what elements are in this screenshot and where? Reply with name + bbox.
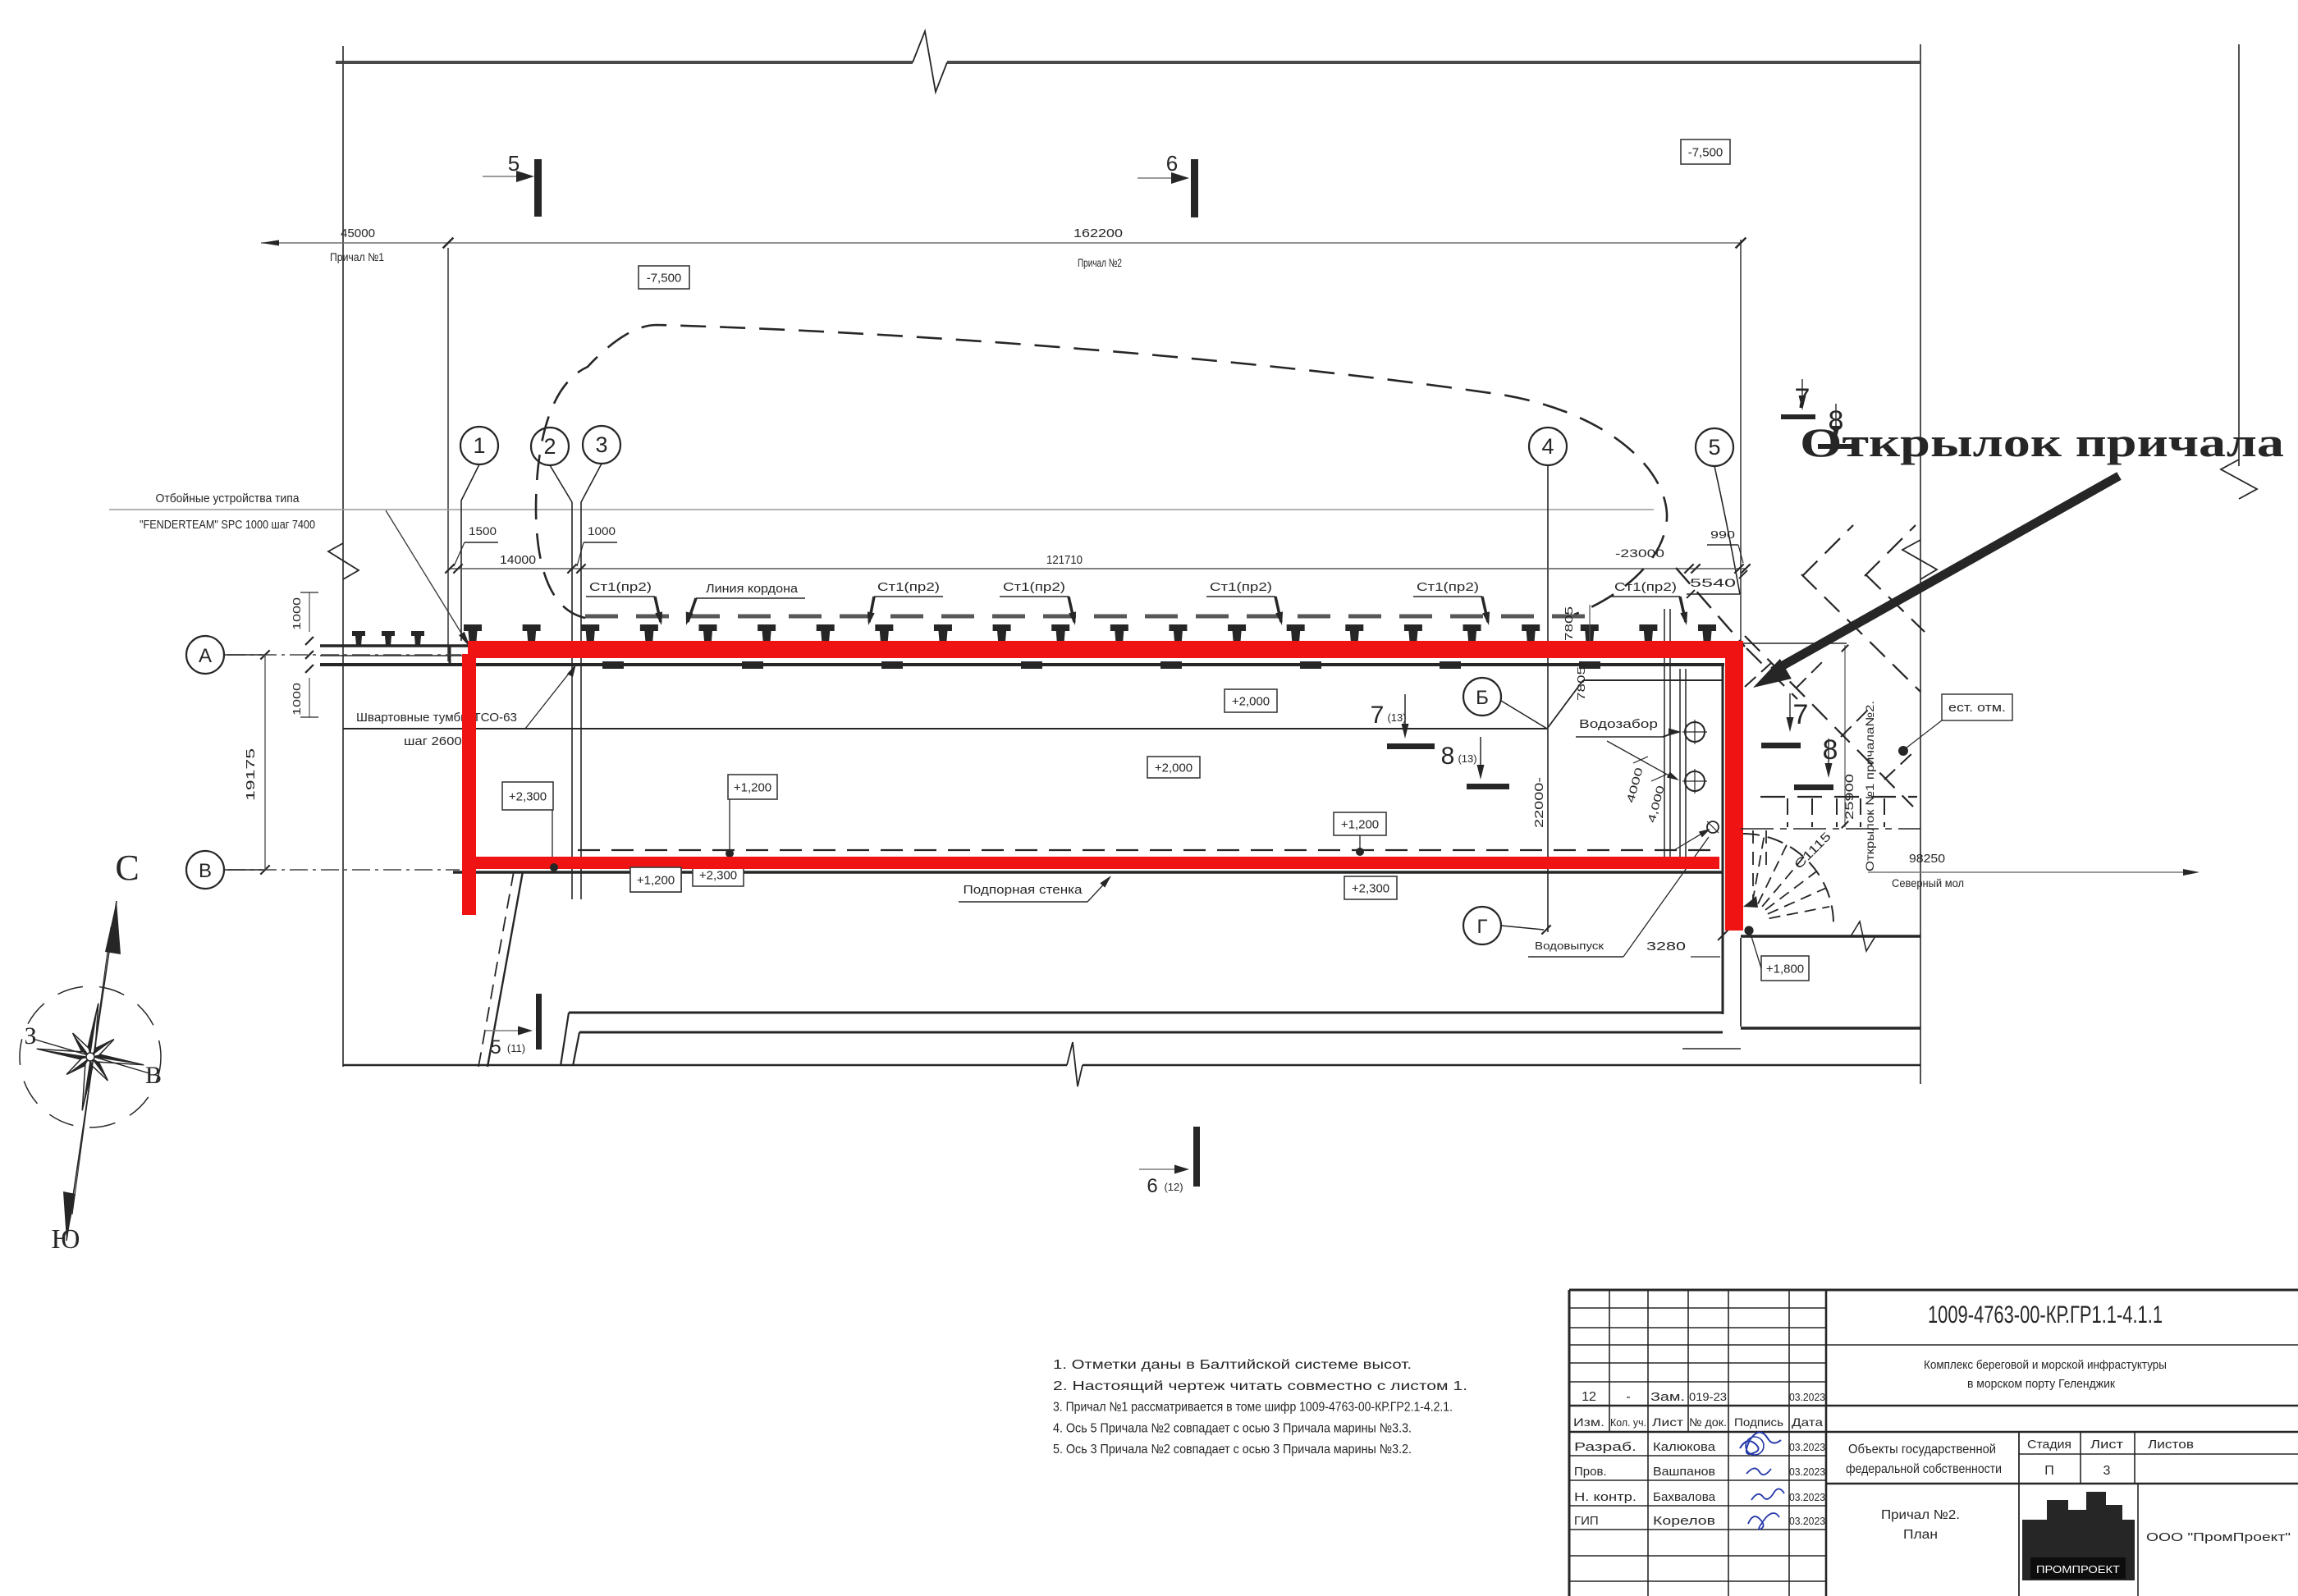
svg-text:4. Ось 5 Причала №2 совпадает: 4. Ось 5 Причала №2 совпадает с осью 3 П… xyxy=(1053,1421,1412,1435)
svg-text:Ю: Ю xyxy=(52,1224,80,1255)
svg-text:Лист: Лист xyxy=(1652,1415,1684,1429)
svg-text:19175: 19175 xyxy=(244,748,258,801)
svg-text:1000: 1000 xyxy=(291,597,303,630)
svg-text:Пров.: Пров. xyxy=(1574,1465,1607,1479)
svg-text:Северный мол: Северный мол xyxy=(1892,876,1964,889)
svg-text:1000: 1000 xyxy=(291,683,303,716)
svg-text:2. Настоящий чертеж читать сов: 2. Настоящий чертеж читать совместно с л… xyxy=(1053,1379,1467,1393)
svg-text:Г: Г xyxy=(1477,916,1488,938)
svg-text:162200: 162200 xyxy=(1073,226,1123,240)
svg-text:7805: 7805 xyxy=(1575,666,1587,701)
svg-text:5540: 5540 xyxy=(1690,576,1736,589)
svg-text:Вашпанов: Вашпанов xyxy=(1653,1465,1715,1479)
svg-text:+2,000: +2,000 xyxy=(1232,694,1270,708)
svg-text:03.2023: 03.2023 xyxy=(1789,1391,1825,1403)
svg-text:П: П xyxy=(2044,1464,2054,1478)
svg-text:ест. отм.: ест. отм. xyxy=(1948,701,2006,715)
svg-text:8: 8 xyxy=(1441,743,1455,770)
svg-text:45000: 45000 xyxy=(341,226,375,240)
svg-text:Водовыпуск: Водовыпуск xyxy=(1535,940,1604,952)
svg-text:+2,300: +2,300 xyxy=(509,789,547,803)
svg-text:+2,300: +2,300 xyxy=(1352,881,1389,895)
svg-text:3. Причал №1 рассматривается в: 3. Причал №1 рассматривается в томе шифр… xyxy=(1053,1401,1453,1415)
svg-text:3280: 3280 xyxy=(1646,940,1686,953)
svg-text:Швартовные тумбы ТСО-63: Швартовные тумбы ТСО-63 xyxy=(356,711,517,725)
svg-text:Ст1(пр2): Ст1(пр2) xyxy=(1417,580,1479,594)
svg-text:Кол. уч.: Кол. уч. xyxy=(1610,1416,1646,1429)
svg-text:Листов: Листов xyxy=(2148,1438,2194,1452)
svg-text:7: 7 xyxy=(1371,702,1385,729)
svg-text:7: 7 xyxy=(1793,699,1809,730)
svg-text:-7,500: -7,500 xyxy=(1688,145,1723,159)
svg-text:03.2023: 03.2023 xyxy=(1789,1515,1825,1527)
svg-text:3: 3 xyxy=(2103,1464,2111,1478)
svg-text:(11): (11) xyxy=(507,1042,525,1054)
svg-text:22000-: 22000- xyxy=(1532,777,1546,828)
svg-text:Ст1(пр2): Ст1(пр2) xyxy=(877,580,940,594)
svg-text:Комплекс береговой и морской и: Комплекс береговой и морской инфрастукту… xyxy=(1924,1358,2167,1372)
svg-text:Линия кордона: Линия кордона xyxy=(706,582,799,596)
svg-text:03.2023: 03.2023 xyxy=(1789,1441,1825,1453)
svg-text:Отбойные устройства типа: Отбойные устройства типа xyxy=(156,492,300,505)
svg-text:Изм.: Изм. xyxy=(1573,1415,1604,1429)
svg-text:Корелов: Корелов xyxy=(1653,1514,1715,1528)
svg-text:1500: 1500 xyxy=(469,524,497,537)
svg-text:Стадия: Стадия xyxy=(2027,1438,2071,1452)
svg-text:федеральной собственности: федеральной собственности xyxy=(1846,1462,2002,1476)
svg-text:1009-4763-00-КР.ГР1.1-4.1.1: 1009-4763-00-КР.ГР1.1-4.1.1 xyxy=(1928,1301,2163,1328)
svg-text:6: 6 xyxy=(1147,1175,1157,1197)
svg-text:Б: Б xyxy=(1476,687,1489,709)
svg-text:+1,200: +1,200 xyxy=(734,780,771,794)
svg-text:98250: 98250 xyxy=(1909,852,1945,866)
svg-text:Объекты государственной: Объекты государственной xyxy=(1848,1443,1996,1457)
svg-text:4: 4 xyxy=(1541,434,1554,459)
svg-text:3: 3 xyxy=(595,432,607,457)
svg-text:в морском порту Геленджик: в морском порту Геленджик xyxy=(1967,1377,2115,1391)
svg-text:ПРОМПРОЕКТ: ПРОМПРОЕКТ xyxy=(2036,1563,2120,1575)
svg-text:Бахвалова: Бахвалова xyxy=(1653,1490,1716,1504)
svg-text:5: 5 xyxy=(508,151,520,176)
svg-text:03.2023: 03.2023 xyxy=(1789,1491,1825,1503)
svg-text:"FENDERTEAM" SPC 1000 шаг 7400: "FENDERTEAM" SPC 1000 шаг 7400 xyxy=(140,518,315,532)
svg-text:5. Ось 3 Причала №2 совпадает: 5. Ось 3 Причала №2 совпадает с осью 3 П… xyxy=(1053,1443,1412,1457)
svg-text:8: 8 xyxy=(1823,734,1838,766)
svg-text:5: 5 xyxy=(1708,435,1720,460)
svg-text:Причал №2: Причал №2 xyxy=(1078,256,1122,269)
svg-text:7805: 7805 xyxy=(1563,606,1575,641)
svg-text:В: В xyxy=(145,1062,162,1089)
svg-text:+1,800: +1,800 xyxy=(1766,962,1804,976)
svg-text:Н. контр.: Н. контр. xyxy=(1574,1490,1637,1504)
svg-text:+2,000: +2,000 xyxy=(1155,761,1192,775)
svg-text:Открылок №1 причала№2.: Открылок №1 причала№2. xyxy=(1863,701,1876,871)
svg-text:Причал №2.: Причал №2. xyxy=(1881,1508,1960,1522)
svg-text:-7,500: -7,500 xyxy=(647,271,682,285)
svg-text:А: А xyxy=(199,645,212,667)
svg-text:Причал №1: Причал №1 xyxy=(330,250,384,263)
svg-text:2: 2 xyxy=(543,434,556,459)
svg-text:Подпорная стенка: Подпорная стенка xyxy=(964,883,1083,897)
svg-text:Дата: Дата xyxy=(1792,1415,1823,1429)
svg-text:(12): (12) xyxy=(1164,1181,1183,1193)
svg-text:Ст1(пр2): Ст1(пр2) xyxy=(1003,580,1065,594)
svg-text:№ док.: № док. xyxy=(1689,1415,1727,1429)
svg-text:Калюкова: Калюкова xyxy=(1653,1440,1716,1454)
svg-text:12: 12 xyxy=(1582,1390,1596,1404)
svg-text:В: В xyxy=(199,860,212,882)
svg-text:019-23: 019-23 xyxy=(1689,1390,1727,1403)
svg-text:Открылок причала: Открылок причала xyxy=(1800,419,2284,465)
svg-text:(13): (13) xyxy=(1387,711,1406,724)
svg-text:+2,300: +2,300 xyxy=(699,868,737,882)
svg-text:(13): (13) xyxy=(1458,752,1476,765)
svg-text:1. Отметки даны в Балтийской с: 1. Отметки даны в Балтийской системе выс… xyxy=(1053,1358,1412,1372)
svg-text:121710: 121710 xyxy=(1046,553,1083,567)
svg-text:1000: 1000 xyxy=(588,524,616,537)
svg-text:С: С xyxy=(115,848,139,888)
svg-text:Зам.: Зам. xyxy=(1650,1390,1685,1404)
svg-text:+1,200: +1,200 xyxy=(637,873,675,887)
svg-text:ООО "ПромПроект": ООО "ПромПроект" xyxy=(2146,1530,2291,1544)
svg-text:Разраб.: Разраб. xyxy=(1574,1440,1637,1454)
svg-text:5: 5 xyxy=(490,1036,501,1059)
svg-text:Лист: Лист xyxy=(2090,1438,2123,1452)
svg-text:14000: 14000 xyxy=(500,553,536,567)
svg-text:Водозабор: Водозабор xyxy=(1579,717,1658,731)
svg-text:Ст1(пр2): Ст1(пр2) xyxy=(1614,580,1677,594)
svg-text:Ст1(пр2): Ст1(пр2) xyxy=(1210,580,1272,594)
svg-text:990: 990 xyxy=(1710,528,1735,541)
svg-text:+1,200: +1,200 xyxy=(1341,817,1379,831)
svg-text:03.2023: 03.2023 xyxy=(1789,1466,1825,1478)
svg-text:-: - xyxy=(1626,1390,1630,1404)
svg-text:З: З xyxy=(24,1022,36,1050)
svg-text:Ст1(пр2): Ст1(пр2) xyxy=(589,580,652,594)
svg-text:1: 1 xyxy=(473,433,485,458)
svg-text:шаг 26000: шаг 26000 xyxy=(404,734,469,748)
svg-text:Подпись: Подпись xyxy=(1734,1415,1783,1429)
svg-text:План: План xyxy=(1903,1528,1938,1542)
svg-text:6: 6 xyxy=(1166,151,1178,176)
svg-text:ГИП: ГИП xyxy=(1574,1514,1599,1528)
